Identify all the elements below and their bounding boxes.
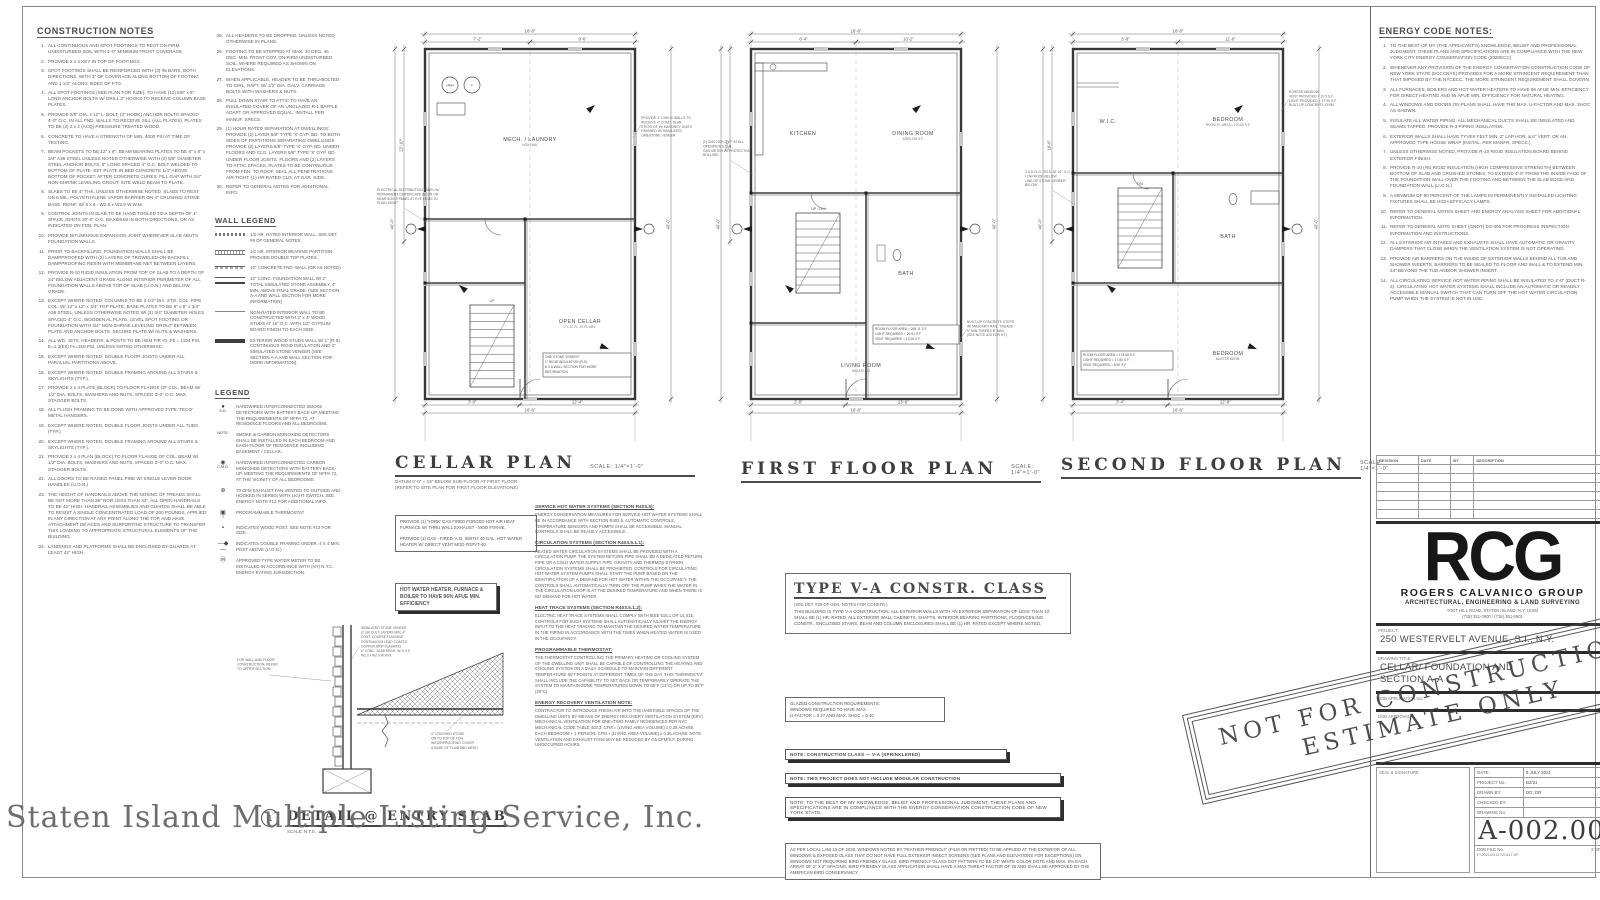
wall-legend-title: WALL LEGEND bbox=[215, 216, 276, 227]
svg-text:BEDROOM: BEDROOM bbox=[1213, 117, 1244, 123]
svg-text:VENT PROVIDED = 10.5 S.F.: VENT PROVIDED = 10.5 S.F. bbox=[1289, 94, 1334, 98]
firm-address: TODT HILL ROAD, STATEN ISLAND, N.Y. 1030… bbox=[1376, 608, 1600, 620]
svg-text:BEDROOM: BEDROOM bbox=[1213, 351, 1244, 357]
note-item: 12.PROVIDE R-10 RIGID INSULATION FROM TO… bbox=[37, 270, 207, 294]
note-item: 2.PROVIDE 2 x 4 KEY IN TOP OF FOOTINGS. bbox=[37, 59, 207, 65]
svg-text:PLAIN SIGHT: PLAIN SIGHT bbox=[377, 201, 398, 205]
first-floor-plan-title: FIRST FLOOR PLAN bbox=[741, 459, 997, 479]
legend-list: ●S.D.HARDWIRED INTERCONNECTED SMOKE DETE… bbox=[215, 404, 341, 575]
svg-text:CONSTRUCTION, REFER: CONSTRUCTION, REFER bbox=[237, 663, 278, 667]
svg-text:FOR WALL AND FLOOR: FOR WALL AND FLOOR bbox=[237, 658, 275, 662]
svg-text:ROOM FLOOR AREA = 178.08 S.F.: ROOM FLOOR AREA = 178.08 S.F. bbox=[1083, 353, 1136, 357]
svg-text:6'-4": 6'-4" bbox=[799, 36, 808, 41]
svg-text:16'-8": 16'-8" bbox=[851, 407, 862, 412]
svg-text:40'-0": 40'-0" bbox=[1313, 218, 1318, 229]
svg-text:DN: DN bbox=[1137, 182, 1143, 186]
legend-item: ◉C.M.D.HARDWIRED INTERCONNECTED CARBON M… bbox=[215, 460, 341, 483]
svg-text:LIVING ROOM: LIVING ROOM bbox=[841, 363, 881, 369]
svg-text:OPEN CELLAR: OPEN CELLAR bbox=[559, 319, 601, 325]
energy-paragraph: PROGRAMMABLE THERMOSTAT:THE THERMOSTAT C… bbox=[535, 648, 705, 695]
note-item: 16.EXCEPT WHERE NOTED, DOUBLE FRAMING AR… bbox=[37, 370, 207, 382]
svg-text:BATH: BATH bbox=[898, 271, 914, 277]
svg-text:10'-2": 10'-2" bbox=[903, 36, 914, 41]
note-item: 20.EXCEPT WHERE NOTED, DOUBLE FRAMING AR… bbox=[37, 439, 207, 451]
dob-file-row: DOB FILE No. 2 OF 11 bbox=[1475, 845, 1600, 853]
construction-notes-list2: 25.ALL HEADERS TO BE DROPPED, UNLESS NOT… bbox=[215, 33, 341, 196]
energy-paragraph: CIRCULATION SYSTEMS (SECTION R403.5.1.1)… bbox=[535, 541, 705, 600]
note-item: 5.PROVIDE 5/8" DIA. x 12" L. BOLT, (3" H… bbox=[37, 112, 207, 130]
construction-class-note-bar: NOTE: CONSTRUCTION CLASS — V-A (SPRINKLE… bbox=[785, 749, 1007, 760]
note-item: 13.EXCEPT WHERE NOTED, COLUMNS TO BE 3 1… bbox=[37, 298, 207, 334]
svg-text:OPENINGS U.O.N.: OPENINGS U.O.N. bbox=[703, 144, 732, 148]
svg-text:9'-6": 9'-6" bbox=[578, 36, 587, 41]
drawing-number: A-002.00 bbox=[1475, 818, 1600, 845]
cellar-plan-title: CELLAR PLAN bbox=[395, 453, 576, 473]
svg-text:11'-0": 11'-0" bbox=[1225, 36, 1236, 41]
energy-paragraph: ENERGY RECOVERY VENTILATION NOTE:CONTRAC… bbox=[535, 701, 705, 748]
wall-legend: WALL LEGEND 1/2 HR. RATED INTERIOR WALL.… bbox=[215, 210, 341, 366]
svg-text:HWH: HWH bbox=[446, 84, 454, 88]
note-item: 7.BEAM POCKETS TO BE 12" x 8". BEAM BEAR… bbox=[37, 149, 207, 185]
svg-text:FINISHED W/ SIMULATED: FINISHED W/ SIMULATED bbox=[641, 129, 683, 133]
wall-legend-item: 1/2 HR. INTERIOR BEARING PARTITION. PROV… bbox=[215, 249, 341, 260]
note-item: 14.ALL WD. JSTS, HEADERS, & POSTS TO BE … bbox=[37, 338, 207, 350]
bird-friendly-box: AS PER LOCAL LAW 15 OF 2020, WINDOWS NOT… bbox=[785, 843, 1101, 880]
svg-text:BELOW: BELOW bbox=[1025, 183, 1038, 187]
svg-text:& BASE OF FLASHING MESH: & BASE OF FLASHING MESH bbox=[431, 746, 478, 750]
svg-text:LIMESTONE VENEER: LIMESTONE VENEER bbox=[641, 134, 676, 138]
note-item: 26.FOOTING TO BE STEPPED AT MAX. 30 DEG.… bbox=[215, 49, 341, 73]
note-item: 1.ALL CONTINUOUS AND SPOT FOOTINGS TO RE… bbox=[37, 43, 207, 55]
wall-legend-list: 1/2 HR. RATED INTERIOR WALL. SEE DET. #8… bbox=[215, 232, 341, 366]
cellar-plan-drawing: 16'-8"7'-2"9'-6"16'-8"3'-0"12'-4"40'-0"2… bbox=[375, 23, 695, 453]
svg-text:RECEIVE 4" CONC. SLAB: RECEIVE 4" CONC. SLAB bbox=[641, 120, 682, 124]
second-floor-plan-drawing: 16'-8"5'-8"11'-0"16'-8"3'-4"12'-8"40'-0"… bbox=[1023, 23, 1343, 453]
note-item: 17.PROVIDE 2 x 4 PLATE (BLOCK) TO FLOOR … bbox=[37, 385, 207, 403]
first-floor-plan-drawing: 16'-8"6'-4"10'-2"16'-8"2'-8"13'-6"40'-0"… bbox=[701, 23, 1021, 453]
titleblock-field: CHECKED BY: bbox=[1475, 798, 1600, 808]
svg-text:2 X 8 CLG. JSTS. AT 16" O.C.: 2 X 8 CLG. JSTS. AT 16" O.C. bbox=[1025, 170, 1071, 174]
sheet-of: 2 OF 11 bbox=[1591, 847, 1600, 852]
svg-text:VENT REQUIRED = 8.90 S.F.: VENT REQUIRED = 8.90 S.F. bbox=[1083, 363, 1127, 367]
note-item: 19.EXCEPT WHERE NOTED, DOUBLE FLOOR JOIS… bbox=[37, 423, 207, 435]
svg-text:19'-6": 19'-6" bbox=[1046, 139, 1051, 150]
svg-text:WATERPROOFING COVER: WATERPROOFING COVER bbox=[431, 741, 474, 745]
seal-box: SEAL & SIGNATURE bbox=[1376, 767, 1470, 873]
svg-text:4" CRUSHED STONE: 4" CRUSHED STONE bbox=[431, 732, 465, 736]
svg-text:INFORMATION: INFORMATION bbox=[545, 370, 568, 374]
cellar-plan-datum-note: DATUM 0'-0" = 15" BELOW SUB-FLOOR AT FIR… bbox=[395, 479, 695, 492]
note-item: 21.PROVIDE 2 x 4 PLAN (BLOCK) TO FLOOR F… bbox=[37, 454, 207, 472]
svg-text:VENT REQUIRED = 13.25 S.F.: VENT REQUIRED = 13.25 S.F. bbox=[875, 337, 921, 341]
legend-item: ▣TPROGRAMMABLE THERMOSTAT bbox=[215, 510, 341, 520]
svg-text:LIGHT PROVIDED = 17.90 S.F.: LIGHT PROVIDED = 17.90 S.F. bbox=[1289, 99, 1337, 103]
svg-text:6" CONC. SLAB REINF. W/ 6 X 6: 6" CONC. SLAB REINF. W/ 6 X 6 bbox=[361, 649, 410, 653]
legend-item: —◆—INDICATES DOUBLE FRAMING UNDER. 4 X 4… bbox=[215, 541, 341, 553]
note-item: 3.SPOT FOOTINGS SHALL BE REINFORCED WITH… bbox=[37, 68, 207, 86]
blueprint-canvas: { "watermark": "Staten Island Multiple L… bbox=[0, 0, 1600, 900]
svg-text:40'-0": 40'-0" bbox=[991, 218, 996, 229]
first-floor-plan-scale: SCALE: 1/4"=1'-0" bbox=[1011, 464, 1041, 479]
wall-legend-item: NON-RATED INTERIOR WALL TO BE CONSTRUCTE… bbox=[215, 310, 341, 333]
note-item: 23.THE HEIGHT OF HANDRAILS ABOVE THE NOS… bbox=[37, 492, 207, 541]
legend-title: LEGEND bbox=[215, 388, 250, 399]
note-item: 8.SLABS TO BE 4" THK. UNLESS OTHERWISE N… bbox=[37, 189, 207, 207]
svg-text:(2) 2x10 HDR. TYP. AT ALL: (2) 2x10 HDR. TYP. AT ALL bbox=[703, 140, 744, 144]
seal-and-fields: SEAL & SIGNATURE DATE:5 JULY 2021PROJECT… bbox=[1376, 767, 1600, 873]
furnace-note-box: PROVIDE (1) 'YORK' GAS FIRED FORCED HOT … bbox=[395, 515, 537, 552]
svg-text:(2 LB) CULT. LAYERS MIN. 4": (2 LB) CULT. LAYERS MIN. 4" bbox=[361, 631, 406, 635]
note-item: 27.WHEN APPLICABLE, HEADER TO BE THRU-BO… bbox=[215, 77, 341, 95]
svg-text:2 X 10 FL. JSTS. ABV.: 2 X 10 FL. JSTS. ABV. bbox=[564, 325, 596, 329]
svg-text:STEPS OF W/ MASONRY UNITS: STEPS OF W/ MASONRY UNITS bbox=[641, 125, 693, 129]
svg-text:W2.9 x W2.9 W.W.M.: W2.9 x W2.9 W.W.M. bbox=[361, 654, 392, 658]
note-item: 29.(1) HOUR RATED SEPARATION AT DWELLING… bbox=[215, 126, 341, 181]
note-item: 24.LANDINGS AND PLATFORMS SHALL BE ENCLO… bbox=[37, 544, 207, 556]
file-path: F:\2021\20117\20117 AP bbox=[1475, 853, 1600, 857]
svg-text:5'-8": 5'-8" bbox=[1121, 36, 1130, 41]
firm-subtitle: ARCHITECTURAL, ENGINEERING & LAND SURVEY… bbox=[1376, 600, 1600, 606]
note-item: 6.CONCRETE TO HAVE A STRENGTH OF MIN. 40… bbox=[37, 134, 207, 146]
revision-table: REVISIONDATEBYDESCRIPTION bbox=[1376, 455, 1600, 519]
legend-item: ●S.D.HARDWIRED INTERCONNECTED SMOKE DETE… bbox=[215, 404, 341, 427]
svg-text:PROVIDE 4" CHECK WALLS TO: PROVIDE 4" CHECK WALLS TO bbox=[641, 116, 691, 120]
svg-text:40'-0": 40'-0" bbox=[665, 218, 670, 229]
first-floor-title-block: FIRST FLOOR PLAN SCALE: 1/4"=1'-0" bbox=[741, 459, 1041, 483]
svg-text:40'-0": 40'-0" bbox=[389, 218, 394, 229]
note-item: 15.EXCEPT WHERE NOTED, DOUBLE FLOOR JOIS… bbox=[37, 354, 207, 366]
svg-text:TO UPPER SECTION: TO UPPER SECTION bbox=[237, 667, 271, 671]
symbol-legend: LEGEND ●S.D.HARDWIRED INTERCONNECTED SMO… bbox=[215, 382, 341, 575]
svg-text:CONTINUOUS LEAD COATED: CONTINUOUS LEAD COATED bbox=[361, 640, 408, 644]
construction-notes-list: 1.ALL CONTINUOUS AND SPOT FOOTINGS TO RE… bbox=[37, 43, 207, 556]
note-item: 25.ALL HEADERS TO BE DROPPED, UNLESS NOT… bbox=[215, 33, 341, 45]
svg-text:ROOM FLOOR AREA = 265.11 S.F.: ROOM FLOOR AREA = 265.11 S.F. bbox=[875, 327, 927, 331]
legend-item: ▪INDICATES WOOD POST. SEE NOTE #13 FOR S… bbox=[215, 525, 341, 536]
wall-legend-item: EXTERIOR WOOD STUDS WALL W/ 1" (R-5) CON… bbox=[215, 338, 341, 367]
svg-text:UP: UP bbox=[489, 299, 495, 303]
note-item: 22.ALL DOORS TO BE RAISED PANEL PINE W/ … bbox=[37, 476, 207, 488]
afue-note-box: HOT WATER HEATER, FURNACE & BOILER TO HA… bbox=[395, 583, 497, 611]
note-item: 30.REFER TO GENERAL NOTES FOR ADDITIONAL… bbox=[215, 184, 341, 196]
revision-table-wrap: REVISIONDATEBYDESCRIPTION bbox=[1376, 455, 1600, 519]
cellar-plan-scale: SCALE: 1/4"=1'-0" bbox=[590, 464, 643, 473]
svg-text:W.I.C.: W.I.C. bbox=[1099, 119, 1116, 125]
svg-text:AREA FL. 12: AREA FL. 12 bbox=[852, 369, 871, 373]
svg-text:W/ MASONRY RAIL. TREADS: W/ MASONRY RAIL. TREADS bbox=[967, 324, 1014, 328]
svg-text:16'-8": 16'-8" bbox=[525, 28, 536, 33]
svg-text:BUILT-UP CONCRETE STEPS: BUILT-UP CONCRETE STEPS bbox=[967, 320, 1015, 324]
svg-text:LIGHT REQUIRED = 17.80 S.F.: LIGHT REQUIRED = 17.80 S.F. bbox=[1083, 358, 1130, 362]
svg-text:CONT. COURSE FLASHING: CONT. COURSE FLASHING bbox=[361, 635, 404, 639]
svg-text:40'-0": 40'-0" bbox=[1037, 218, 1042, 229]
svg-text:DINING ROOM: DINING ROOM bbox=[892, 131, 934, 137]
svg-text:COPPER DRIP FLASHING: COPPER DRIP FLASHING bbox=[361, 644, 401, 648]
cellar-plan-title-block: CELLAR PLAN SCALE: 1/4"=1'-0" DATUM 0'-0… bbox=[395, 453, 695, 492]
note-item: 28.PULL DOWN STAIR TO ATTIC TO HAVE AN I… bbox=[215, 98, 341, 122]
construction-notes-col1: CONSTRUCTION NOTES 1.ALL CONTINUOUS AND … bbox=[37, 21, 207, 560]
svg-text:ON TO TOP OF FDN.: ON TO TOP OF FDN. bbox=[431, 737, 464, 741]
drawing-sheet: CONSTRUCTION NOTES 1.ALL CONTINUOUS AND … bbox=[22, 6, 1596, 878]
svg-text:F: F bbox=[471, 84, 473, 88]
svg-text:ONE STONE VENEER: ONE STONE VENEER bbox=[545, 355, 579, 359]
svg-text:16'-8": 16'-8" bbox=[525, 407, 536, 412]
construction-notes-col2: 25.ALL HEADERS TO BE DROPPED, UNLESS NOT… bbox=[215, 21, 341, 580]
construction-class-body: THIS BUILDING IS TYPE V-A CONSTRUCTION. … bbox=[794, 609, 1062, 627]
construction-notes-title: CONSTRUCTION NOTES bbox=[37, 26, 154, 38]
legend-item: ⓂAPPROVED TYPE WATER METER TO BE INSTALL… bbox=[215, 558, 341, 575]
svg-text:ELECTRICAL DISTRIBUTION PANEL: ELECTRICAL DISTRIBUTION PANEL W/ bbox=[377, 188, 439, 192]
svg-text:16'-8": 16'-8" bbox=[851, 28, 862, 33]
glazed-requirements-box: GLAZED CONSTRUCTION REQUIREMENTS: WINDOW… bbox=[785, 697, 945, 722]
svg-text:40'-0": 40'-0" bbox=[715, 218, 720, 229]
titleblock-field: PROJECT No.:B2/21 bbox=[1475, 778, 1600, 788]
svg-text:NEAR 6/2019 PANEL AT EYE LEVEL: NEAR 6/2019 PANEL AT EYE LEVEL IN bbox=[377, 197, 438, 201]
svg-text:LINE OF STONE VENEER: LINE OF STONE VENEER bbox=[1025, 179, 1066, 183]
second-floor-plan-title: SECOND FLOOR PLAN bbox=[1061, 455, 1346, 475]
wall-legend-item: 10" CONC. FOUNDATION WALL W/ 2" TOTAL SI… bbox=[215, 276, 341, 305]
mls-watermark: Staten Island Multiple Listing Service, … bbox=[6, 800, 704, 835]
svg-text:EGRESS WINDOW: EGRESS WINDOW bbox=[1289, 90, 1320, 94]
svg-text:9" MIN. RISERS 8" MAX.: 9" MIN. RISERS 8" MAX. bbox=[967, 329, 1005, 333]
note-item: 11.PRIOR TO BACKFILLING, FOUNDATION WALL… bbox=[37, 249, 207, 267]
energy-paragraphs: SERVICE HOT WATER SYSTEMS (SECTION R403.… bbox=[535, 505, 705, 754]
svg-text:MASTER BDRM.: MASTER BDRM. bbox=[1216, 357, 1241, 361]
dob-file-label: DOB FILE No. bbox=[1477, 847, 1504, 852]
svg-text:16'-8": 16'-8" bbox=[1173, 407, 1184, 412]
rcg-logo: RCG bbox=[1376, 524, 1600, 588]
titleblock-field: DATE:5 JULY 2021 bbox=[1475, 768, 1600, 778]
svg-text:BOLLARD: BOLLARD bbox=[703, 153, 719, 157]
legend-item: ⊕70 CFM EXHAUST FAN VENTED TO OUTSIDE AN… bbox=[215, 488, 341, 505]
note-item: 9.CONTROL JOINTS IN SLAB TO BE HAND TOOL… bbox=[37, 211, 207, 229]
svg-text:BATH: BATH bbox=[1220, 234, 1236, 240]
construction-class-subnote: (SEE DET. #29 OF GEN. NOTES FOR CONSTR.) bbox=[794, 602, 1062, 607]
svg-text:LIGHT REQUIRED = 26.51 S.F.: LIGHT REQUIRED = 26.51 S.F. bbox=[875, 332, 922, 336]
entry-slab-detail-drawing: FOR WALL AND FLOORCONSTRUCTION, REFERTO … bbox=[235, 619, 525, 809]
note-item: 18.ALL FLUSH FRAMING TO BE DONE WITH APP… bbox=[37, 407, 207, 419]
note-item: 10.PROVIDE BITUMINOUS EXPANSION JOINT WH… bbox=[37, 233, 207, 245]
svg-text:GAS METER W/ PROTECTIVE: GAS METER W/ PROTECTIVE bbox=[703, 149, 751, 153]
modular-note-bar: NOTE: THIS PROJECT DOES NOT INCLUDE MODU… bbox=[785, 773, 1061, 784]
second-floor-title-block: SECOND FLOOR PLAN SCALE: 1/4"=1'-0" bbox=[1061, 455, 1361, 479]
legend-item: NOTE:SMOKE & CARBON MONOXIDE DETECTORS S… bbox=[215, 432, 341, 455]
wall-legend-item: 10" CONCRETE FND. WALL (OR AS NOTED) bbox=[215, 265, 341, 271]
wall-legend-item: 1/2 HR. RATED INTERIOR WALL. SEE DET. #8… bbox=[215, 232, 341, 243]
energy-paragraph: HEAT TRACE SYSTEMS (SECTION R403.5.1.2):… bbox=[535, 606, 705, 642]
note-item: 4.ALL SPOT FOOTINGS (SEE PLAN FOR SIZE),… bbox=[37, 90, 207, 108]
field-table: DATE:5 JULY 2021PROJECT No.:B2/21DRAWN B… bbox=[1474, 767, 1600, 873]
svg-text:22'-10": 22'-10" bbox=[398, 138, 403, 152]
svg-text:UP / DN: UP / DN bbox=[811, 207, 825, 211]
construction-class-title: TYPE V-A CONSTR. CLASS bbox=[794, 581, 1046, 599]
svg-text:7'-2": 7'-2" bbox=[473, 36, 482, 41]
titleblock-field: DRAWN BY:DG, DR bbox=[1475, 788, 1600, 798]
svg-text:NON HAB.: NON HAB. bbox=[522, 143, 538, 147]
svg-text:MECH. / LAUNDRY: MECH. / LAUNDRY bbox=[503, 137, 557, 143]
svg-text:1" RIGID INSULATION (R-5): 1" RIGID INSULATION (R-5) bbox=[545, 360, 587, 364]
construction-class-box: TYPE V-A CONSTR. CLASS (SEE DET. #29 OF … bbox=[785, 573, 1071, 634]
svg-text:16'-8": 16'-8" bbox=[1173, 28, 1184, 33]
svg-text:BUILT-UP CONCRETE CHIM.: BUILT-UP CONCRETE CHIM. bbox=[1289, 103, 1335, 107]
svg-text:LOW ROOF BELOW: LOW ROOF BELOW bbox=[1025, 174, 1057, 178]
energy-paragraph: SERVICE HOT WATER SYSTEMS (SECTION R403.… bbox=[535, 505, 705, 535]
svg-text:KITCHEN: KITCHEN bbox=[790, 131, 816, 137]
seal-label: SEAL & SIGNATURE bbox=[1379, 770, 1469, 775]
svg-text:SIMULATED STONE VENEER: SIMULATED STONE VENEER bbox=[361, 626, 407, 630]
svg-text:ROOM FL. AREA = 120.60 S.F.: ROOM FL. AREA = 120.60 S.F. bbox=[1206, 123, 1250, 127]
svg-text:PERMANENT CERTIFICATE IN, ON O: PERMANENT CERTIFICATE IN, ON OR bbox=[377, 192, 439, 196]
svg-text:(SEE NOTE #23 FOR HT.): (SEE NOTE #23 FOR HT.) bbox=[967, 333, 1007, 337]
svg-text:6 X 6 WALL SECTION FOR MORE: 6 X 6 WALL SECTION FOR MORE bbox=[545, 365, 597, 369]
energy-compliance-note-bar: NOTE: TO THE BEST OF MY KNOWLEDGE, BELIE… bbox=[785, 797, 1061, 818]
svg-text:AREA 196 S.F.: AREA 196 S.F. bbox=[902, 137, 923, 141]
